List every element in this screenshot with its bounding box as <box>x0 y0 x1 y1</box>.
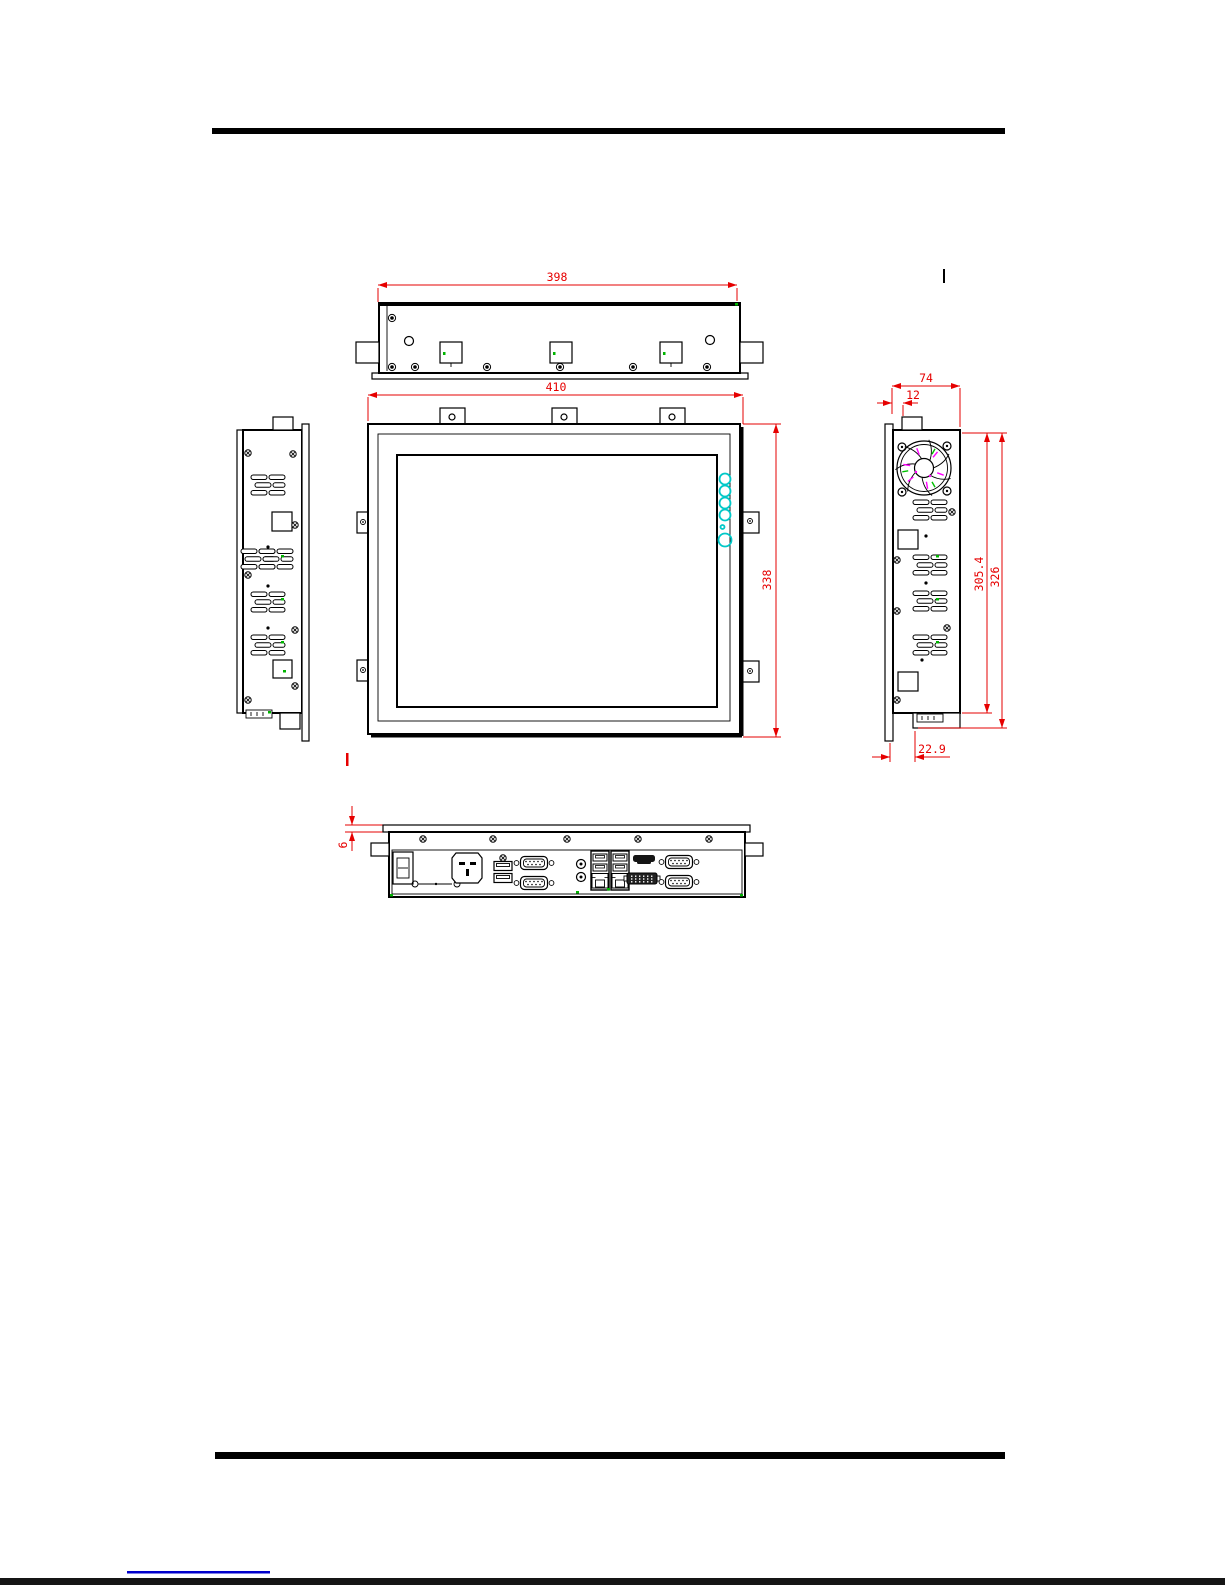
screw-icon <box>500 855 506 861</box>
footer-link-line <box>127 1571 270 1574</box>
dvi-port <box>624 873 660 884</box>
front-bezel-edge <box>885 424 893 741</box>
lcd-screen <box>397 455 717 707</box>
screw-icon <box>944 625 950 631</box>
mount-tab <box>280 713 300 729</box>
bottom-io-view: 6 <box>336 806 763 897</box>
right-side-view: 74 12 <box>872 371 1007 762</box>
screw-icon <box>388 363 395 370</box>
front-bezel-lip <box>383 825 750 832</box>
mount-ear-right <box>740 342 763 363</box>
side-cutout <box>273 660 292 678</box>
screw-icon <box>290 451 296 457</box>
screw-icon <box>292 522 298 528</box>
screw-icon <box>556 363 563 370</box>
mount-tab <box>902 417 922 430</box>
screw-icon <box>629 363 636 370</box>
screw-icon <box>894 608 900 614</box>
screw-icon <box>245 450 251 456</box>
ac-power-inlet <box>452 853 482 883</box>
power-switch <box>393 852 413 884</box>
screw-icon <box>388 314 395 321</box>
dim-label-top-width: 398 <box>547 270 568 284</box>
usb-port <box>494 874 512 883</box>
top-view: 398 <box>356 270 763 379</box>
bottom-connector <box>917 714 943 722</box>
section-tick-mark-red <box>346 753 349 766</box>
header-rule <box>212 128 1005 134</box>
screw-icon <box>706 836 712 842</box>
dim-label-inner-height: 305.4 <box>972 557 986 592</box>
screw-icon <box>894 557 900 563</box>
mount-tab <box>273 417 293 430</box>
mount-tab-top <box>660 408 685 424</box>
side-cutout <box>898 530 918 549</box>
dim-label-front-width: 410 <box>546 380 567 394</box>
usb-lan-combo <box>591 851 609 890</box>
dim-label-front-height: 338 <box>760 570 774 591</box>
dim-label-bezel-lip: 6 <box>336 841 350 848</box>
drawing-page: 398 410 <box>0 0 1225 1585</box>
dim-label-side-depth: 74 <box>919 371 933 385</box>
screw-icon <box>949 509 955 515</box>
front-view: 410 338 <box>357 380 781 737</box>
screw-icon <box>245 697 251 703</box>
dim-label-tab-offset: 12 <box>906 388 920 402</box>
screw-icon <box>894 697 900 703</box>
screw-icon <box>703 363 710 370</box>
side-cutout <box>272 512 292 531</box>
mount-ear-right <box>745 843 763 856</box>
dimension-drawing: 398 410 <box>0 0 1225 1585</box>
screw-icon <box>490 836 496 842</box>
mount-tab-right <box>742 512 759 533</box>
screw-icon <box>245 572 251 578</box>
screw-icon <box>564 836 570 842</box>
page-bottom-edge <box>0 1578 1225 1585</box>
mount-ear-left <box>356 342 379 363</box>
screw-icon <box>292 683 298 689</box>
front-bezel-edge <box>302 424 309 741</box>
mount-tab-top <box>440 408 465 424</box>
mount-tab-top <box>552 408 577 424</box>
screw-icon <box>483 363 490 370</box>
screw-icon <box>420 836 426 842</box>
section-tick-mark <box>943 269 945 283</box>
usb-lan-combo <box>611 851 629 890</box>
screw-icon <box>635 836 641 842</box>
screw-icon <box>292 627 298 633</box>
dim-label-mount-depth: 22.9 <box>918 742 946 756</box>
screw-icon <box>411 363 418 370</box>
side-cutout <box>898 672 918 691</box>
mount-ear-left <box>371 843 389 856</box>
usb-port <box>494 862 512 871</box>
dim-label-outer-height: 326 <box>988 567 1002 588</box>
footer-rule <box>215 1452 1005 1459</box>
left-side-view <box>237 417 309 741</box>
